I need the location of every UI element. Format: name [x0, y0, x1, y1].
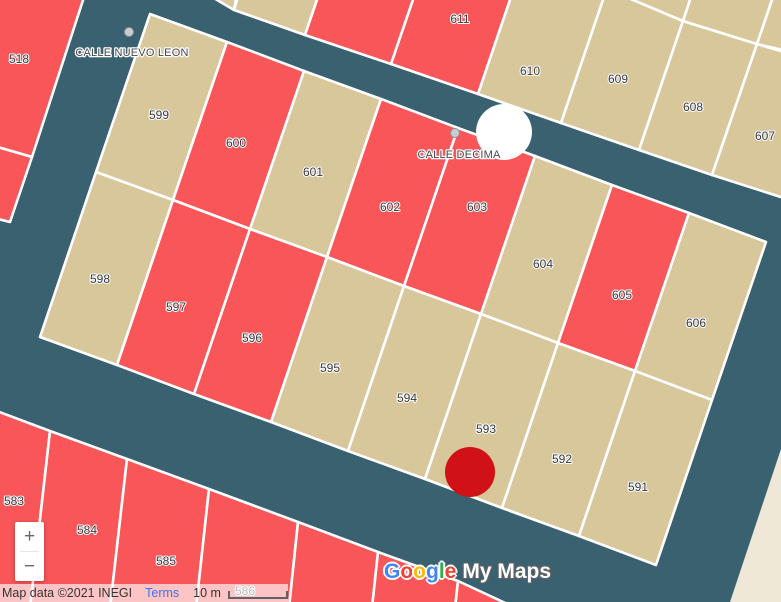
google-logo-letter: g — [426, 560, 439, 583]
zoom-in-button[interactable]: + — [15, 522, 44, 551]
zoom-out-button[interactable]: − — [15, 552, 44, 581]
parcel-label-610: 610 — [520, 64, 540, 78]
street-label-nuevoleon: CALLE NUEVO LEON — [75, 47, 188, 59]
parcel-label-598: 598 — [90, 272, 110, 286]
scale-text: 10 m — [193, 586, 221, 600]
red-dot-marker[interactable] — [445, 447, 495, 497]
parcel-518[interactable] — [0, 0, 85, 157]
parcel-label-595: 595 — [320, 361, 340, 375]
parcel-label-601: 601 — [303, 165, 323, 179]
google-logo-letter: G — [384, 560, 400, 583]
scale-bar — [228, 591, 288, 599]
parcel-label-611: 611 — [450, 12, 469, 26]
parcel-unlabeled[interactable] — [0, 146, 32, 222]
parcel-unlabeled[interactable] — [207, 0, 237, 10]
parcel-label-585: 585 — [156, 554, 176, 568]
parcel-label-594: 594 — [397, 391, 417, 405]
parcel-label-607: 607 — [755, 129, 775, 143]
parcel-label-602: 602 — [380, 200, 400, 214]
parcel-label-603: 603 — [467, 200, 487, 214]
google-logo-letter: o — [400, 560, 413, 583]
parcel-label-597: 597 — [166, 300, 186, 314]
google-my-maps-watermark: GoogleMy Maps — [384, 560, 551, 584]
street-dot-nuevoleon — [125, 28, 134, 37]
parcel-label-591: 591 — [628, 480, 648, 494]
parcel-label-608: 608 — [683, 100, 703, 114]
parcel-label-604: 604 — [533, 257, 553, 271]
parcel-label-596: 596 — [242, 331, 262, 345]
terms-link[interactable]: Terms — [145, 586, 179, 600]
google-logo-letter: o — [413, 560, 426, 583]
parcel-label-593: 593 — [476, 422, 496, 436]
parcel-label-599: 599 — [149, 108, 169, 122]
my-maps-logo-text: My Maps — [462, 560, 551, 583]
parcel-label-609: 609 — [608, 72, 628, 86]
my-maps-viewport: 5186116106096086075996006016026036046056… — [0, 0, 781, 602]
parcel-label-518: 518 — [9, 52, 29, 66]
parcel-unlabeled[interactable] — [289, 522, 378, 602]
zoom-controls: + − — [15, 522, 44, 581]
map-data-attribution: Map data ©2021 INEGI — [2, 586, 132, 600]
parcel-label-583: 583 — [4, 494, 24, 508]
street-dot-decima — [451, 129, 460, 138]
parcel-label-600: 600 — [226, 136, 246, 150]
parcel-label-605: 605 — [612, 288, 632, 302]
map-canvas[interactable]: 5186116106096086075996006016026036046056… — [0, 0, 781, 602]
google-logo-letter: e — [445, 560, 457, 583]
attribution-bar: Map data ©2021 INEGI Terms 10 m — [0, 584, 288, 602]
base-land — [728, 431, 781, 602]
parcel-label-584: 584 — [77, 523, 97, 537]
parcel-585[interactable] — [110, 459, 209, 602]
parcel-unlabeled[interactable] — [455, 581, 516, 602]
google-logo: Google — [384, 560, 456, 583]
parcel-label-592: 592 — [552, 452, 572, 466]
parcel-label-606: 606 — [686, 316, 706, 330]
street-label-decima: CALLE DECIMA — [417, 149, 501, 161]
